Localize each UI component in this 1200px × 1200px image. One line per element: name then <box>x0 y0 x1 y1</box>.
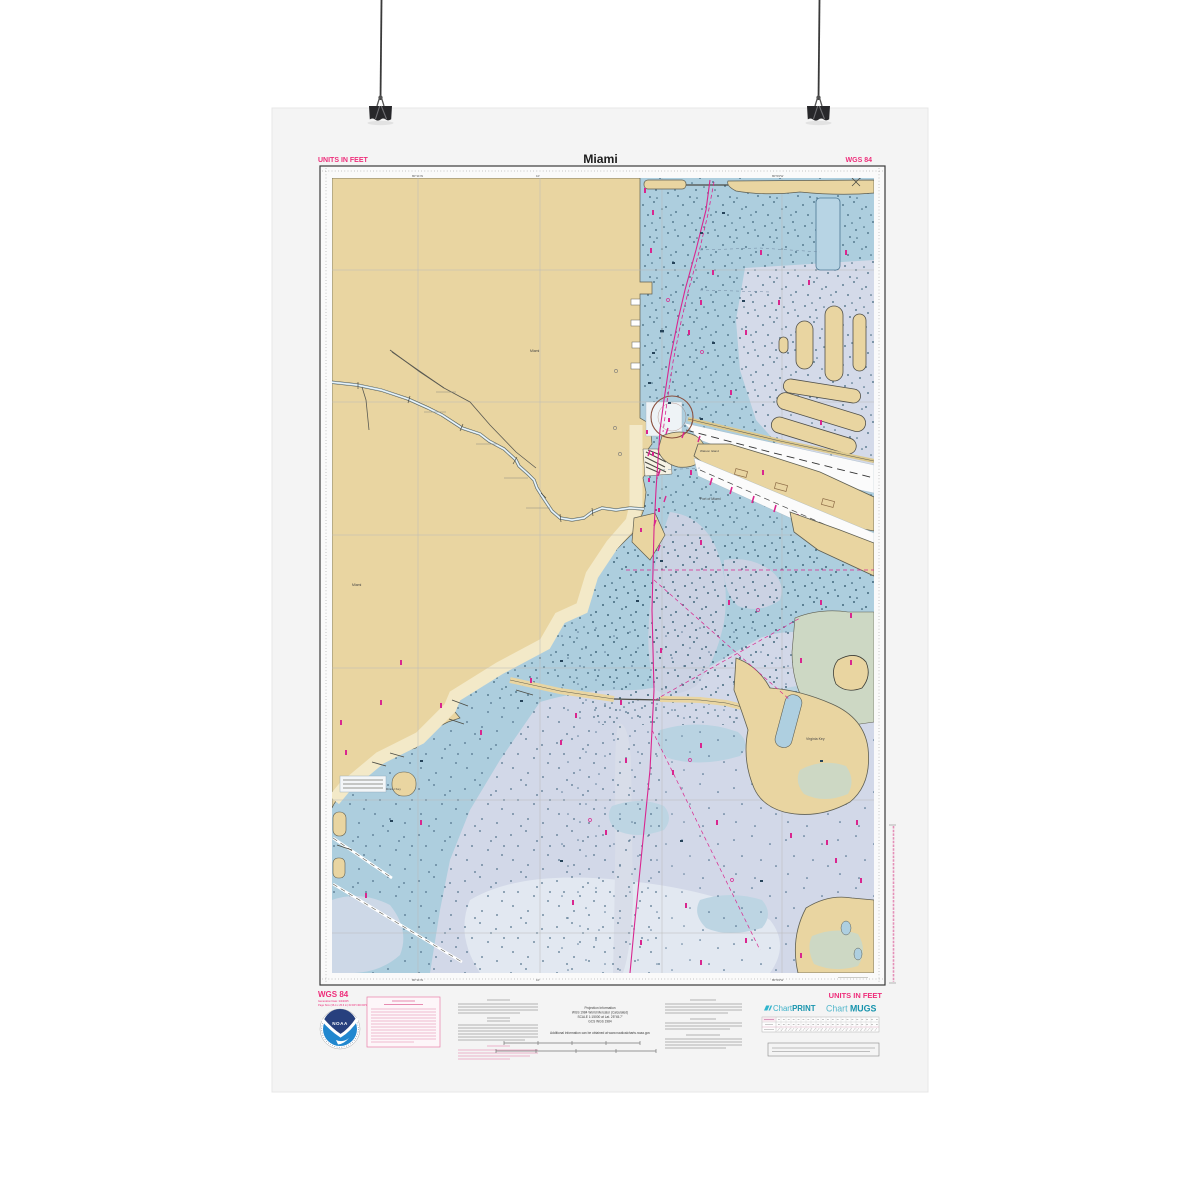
svg-text:NOAA: NOAA <box>332 1021 348 1026</box>
svg-text:Watson Island: Watson Island <box>700 449 719 453</box>
svg-text:UNITS IN FEET: UNITS IN FEET <box>318 157 369 164</box>
svg-text:Virginia Key: Virginia Key <box>806 737 825 741</box>
svg-text:Miami: Miami <box>352 583 362 587</box>
svg-text:10': 10' <box>536 978 540 982</box>
svg-text:80°11'W: 80°11'W <box>412 174 423 178</box>
svg-text:UNITS IN FEET: UNITS IN FEET <box>829 991 883 1000</box>
svg-text:80°11'W: 80°11'W <box>412 978 423 982</box>
svg-text:Chart MUGS: Chart MUGS <box>826 1004 876 1014</box>
svg-text:WGS 84: WGS 84 <box>846 157 873 164</box>
svg-text:Dinner Key: Dinner Key <box>386 787 401 791</box>
svg-text:10': 10' <box>536 174 540 178</box>
svg-text:Page Size (36.4 x 25.6 in) 63: Page Size (36.4 x 25.6 in) 63 DPI 300 DP… <box>318 1003 373 1007</box>
svg-text:WGS 84: WGS 84 <box>318 990 349 999</box>
svg-text:Projection Information: Projection Information <box>584 1006 615 1010</box>
svg-text:Miami: Miami <box>530 349 540 353</box>
svg-text:WGS 1984 World Mercator (Calcu: WGS 1984 World Mercator (Calculated) <box>572 1011 628 1015</box>
svg-text:Port of Miami: Port of Miami <box>700 497 721 501</box>
svg-text:80°09'W: 80°09'W <box>772 174 783 178</box>
svg-text:Additional information can be: Additional information can be obtained a… <box>550 1031 650 1035</box>
svg-text:ChartPRINT: ChartPRINT <box>773 1004 816 1013</box>
svg-text:SCALE 1:15000 at Lat. 25°45.7': SCALE 1:15000 at Lat. 25°45.7' <box>577 1015 623 1019</box>
svg-text:GCS WGS 1984: GCS WGS 1984 <box>588 1020 612 1024</box>
svg-text:80°09'W: 80°09'W <box>772 978 783 982</box>
svg-text:Miami: Miami <box>583 152 618 166</box>
svg-text:Generation Date: 3/4/2025: Generation Date: 3/4/2025 <box>318 999 349 1003</box>
